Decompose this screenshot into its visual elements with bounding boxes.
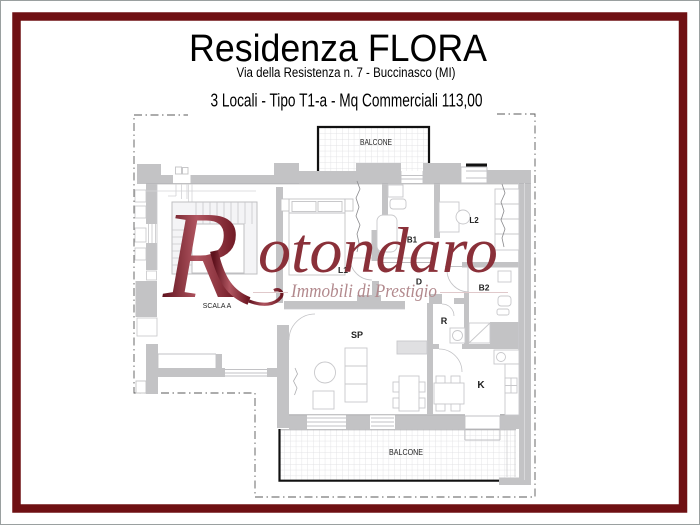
svg-text:3 Locali - Tipo T1-a - Mq Comm: 3 Locali - Tipo T1-a - Mq Commerciali 11… <box>211 91 483 111</box>
svg-text:Immobili di Prestigio: Immobili di Prestigio <box>290 281 437 302</box>
svg-text:R: R <box>162 187 239 325</box>
svg-text:Residenza FLORA: Residenza FLORA <box>189 28 488 70</box>
svg-text:BALCONE: BALCONE <box>360 138 392 147</box>
svg-text:Via della Resistenza n. 7 - Bu: Via della Resistenza n. 7 - Buccinasco (… <box>237 65 456 80</box>
svg-text:otondaro: otondaro <box>258 215 498 287</box>
svg-text:K: K <box>477 380 485 391</box>
svg-text:BALCONE: BALCONE <box>389 448 423 457</box>
svg-text:SP: SP <box>351 330 363 340</box>
svg-text:R: R <box>441 316 448 326</box>
